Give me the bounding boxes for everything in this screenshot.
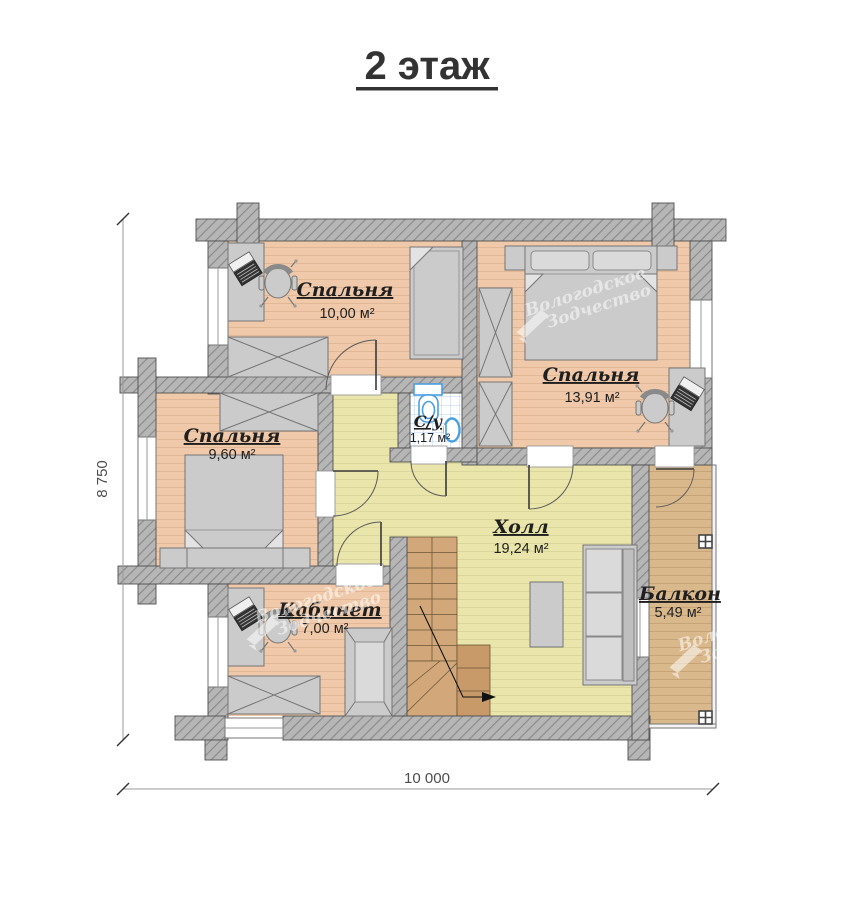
armchair-icon (345, 628, 392, 716)
title-underline (356, 87, 498, 91)
coffee-table-icon (530, 582, 563, 647)
wall-log-stub-bottom-left (205, 740, 227, 760)
bedroom3-label: Спальня (184, 425, 281, 447)
floor-plan-page: Вологодское Зодчество 2 этаж (0, 0, 852, 918)
bedroom1-label: Спальня (297, 279, 394, 301)
wardrobe-icon (228, 676, 320, 714)
window-bedroom3-left (138, 437, 156, 520)
sofa-icon (583, 545, 637, 685)
bedroom1-area: 10,00 м² (319, 306, 374, 322)
balcony-area: 5,49 м² (654, 605, 701, 621)
wall-log-stub-bottom-right (628, 740, 650, 760)
wardrobe-icon (479, 288, 512, 377)
window-bedroom1-left (208, 268, 228, 345)
wall-bottom (175, 716, 225, 740)
threshold-bedroom3 (316, 471, 335, 517)
bedroom3-area: 9,60 м² (208, 447, 255, 463)
floor-plan-canvas: Вологодское Зодчество 2 этаж (0, 0, 852, 918)
bedroom2-label: Спальня (543, 364, 640, 386)
window-office-left (208, 617, 228, 687)
hall-area: 19,24 м² (493, 541, 548, 557)
dimension-width: 10 000 (404, 770, 450, 787)
dimension-height: 8 750 (94, 460, 111, 498)
balcony-label: Балкон (638, 583, 721, 605)
window-office-bottom (225, 718, 283, 738)
page-title: 2 этаж (364, 44, 490, 88)
hall-label: Холл (492, 516, 548, 538)
wall-stairs (390, 537, 407, 716)
threshold-bedroom1 (331, 375, 381, 395)
balcony-post-icon (699, 711, 712, 724)
wardrobe-icon (479, 382, 512, 446)
balcony-post-icon (699, 535, 712, 548)
single-bed-icon (410, 247, 463, 359)
threshold-balcony (655, 446, 694, 467)
threshold-bathroom (411, 446, 447, 464)
wardrobe-icon (228, 337, 328, 377)
bathroom-area: 1,17 м² (410, 431, 451, 445)
wall-top (196, 219, 726, 241)
window-bedroom2-right (690, 300, 712, 378)
bathroom-label: С/у (414, 412, 444, 431)
threshold-bedroom2 (527, 446, 573, 467)
bedroom2-area: 13,91 м² (564, 390, 619, 406)
